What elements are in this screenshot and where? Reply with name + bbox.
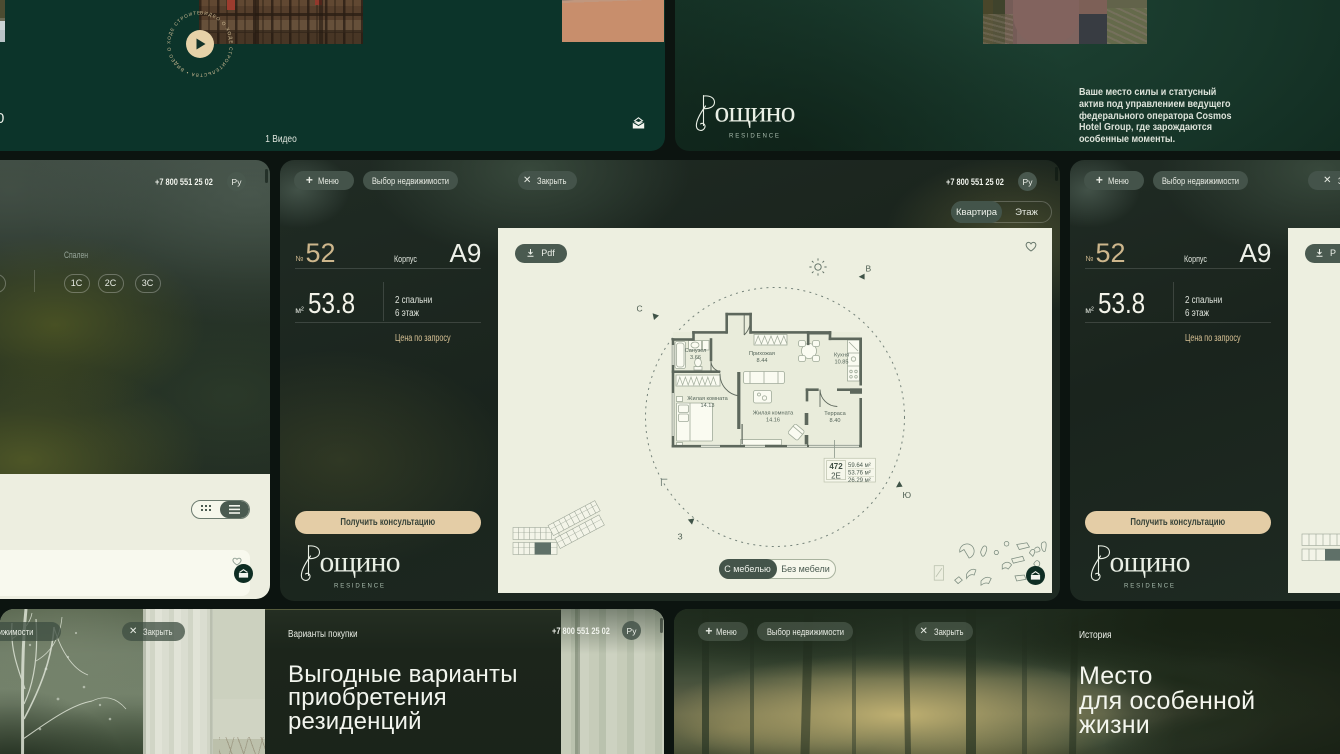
svg-text:ощино: ощино xyxy=(1110,547,1190,579)
svg-text:RESIDENCE: RESIDENCE xyxy=(729,133,781,140)
svg-text:ВИДЕО О ХОДЕ СТРОИТЕЛЬСТВА • В: ВИДЕО О ХОДЕ СТРОИТЕЛЬСТВА • ВИДЕО О ХОД… xyxy=(129,0,234,78)
svg-text:З: З xyxy=(678,532,683,542)
svg-text:53.76 м²: 53.76 м² xyxy=(848,471,871,477)
svg-text:С: С xyxy=(637,304,643,314)
svg-text:ощино: ощино xyxy=(320,547,400,579)
svg-text:В: В xyxy=(866,264,872,274)
svg-text:Терраса: Терраса xyxy=(824,411,846,417)
svg-text:Санузел: Санузел xyxy=(685,348,707,354)
svg-text:3.66: 3.66 xyxy=(690,355,701,361)
svg-text:14.16: 14.16 xyxy=(766,418,780,424)
svg-text:Жилая комната: Жилая комната xyxy=(687,396,728,402)
svg-text:8.40: 8.40 xyxy=(830,418,841,424)
svg-text:10.85: 10.85 xyxy=(835,360,849,366)
svg-text:2Е: 2Е xyxy=(831,472,841,481)
svg-text:14.13: 14.13 xyxy=(701,403,715,409)
svg-text:26.29 м²: 26.29 м² xyxy=(848,478,871,484)
svg-text:Прихожая: Прихожая xyxy=(749,351,775,357)
svg-text:ощино: ощино xyxy=(715,97,795,129)
svg-text:59.64 м²: 59.64 м² xyxy=(848,463,871,469)
svg-text:Ю: Ю xyxy=(903,490,912,500)
svg-text:8.44: 8.44 xyxy=(757,358,768,364)
svg-text:Жилая комната: Жилая комната xyxy=(753,411,794,417)
svg-text:RESIDENCE: RESIDENCE xyxy=(1124,583,1176,590)
svg-text:472: 472 xyxy=(829,462,843,471)
svg-text:RESIDENCE: RESIDENCE xyxy=(334,583,386,590)
svg-text:Кухня: Кухня xyxy=(834,353,849,359)
